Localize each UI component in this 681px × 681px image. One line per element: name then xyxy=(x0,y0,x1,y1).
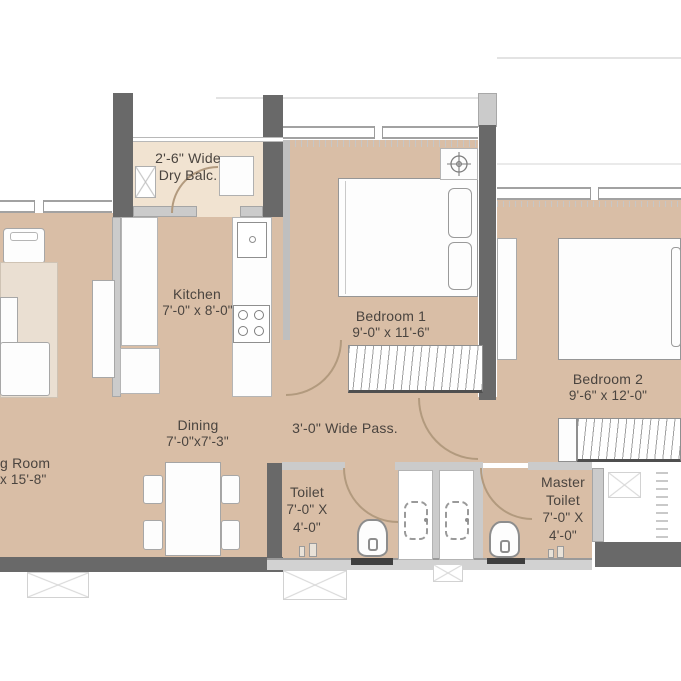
faucet-icon xyxy=(557,546,564,558)
master-wc-icon xyxy=(489,521,520,558)
dining-table xyxy=(165,462,221,556)
kitchen-dims: 7'-0" x 8'-0" xyxy=(140,303,255,318)
wardrobe2-end-cap xyxy=(558,418,577,462)
dining-label: Dining xyxy=(148,417,248,433)
bottom-wall xyxy=(0,557,283,572)
bedroom2-window xyxy=(497,187,681,200)
bedroom2-window-hatch xyxy=(497,201,681,207)
faucet-icon xyxy=(299,546,305,557)
armchair xyxy=(3,228,45,264)
bedroom2-dims: 9'-6" x 12'-0" xyxy=(543,388,673,403)
column-left xyxy=(113,93,133,217)
bedroom2-dresser xyxy=(497,238,517,360)
burner-icon xyxy=(238,326,248,336)
kitchen-label: Kitchen xyxy=(147,286,247,302)
wc-flush-icon xyxy=(368,538,378,551)
sink-drain-icon xyxy=(249,236,256,243)
kitchen-platform-left xyxy=(121,217,158,346)
duct-icon xyxy=(433,564,463,582)
dining-chair xyxy=(143,520,163,550)
column-mid xyxy=(263,95,283,217)
kitchen-sink xyxy=(237,222,267,258)
bedroom2-label: Bedroom 2 xyxy=(548,371,668,387)
bedroom2-window-mullion xyxy=(590,187,599,200)
duct-icon xyxy=(608,472,641,498)
sofa xyxy=(0,342,50,396)
exterior-ledge xyxy=(27,572,89,598)
shower-drain-icon xyxy=(424,518,428,522)
shower-drain-icon xyxy=(465,518,469,522)
armchair-cushion xyxy=(10,232,38,241)
bed1-fold-line xyxy=(345,181,346,294)
exterior-line-top xyxy=(216,97,478,99)
passage-label: 3'-0" Wide Pass. xyxy=(275,420,415,436)
wc1-base-ledge xyxy=(351,558,393,565)
kitchen-bedroom1-wall xyxy=(283,140,290,340)
faucet-icon xyxy=(309,543,317,557)
master-toilet-dims-line1: 7'-0" X xyxy=(523,510,603,525)
wc2-base-ledge xyxy=(487,558,525,564)
ceiling-fan-box xyxy=(440,148,478,180)
living-room-dims: x 15'-8" xyxy=(0,472,60,487)
toilet-dims-line1: 7'-0" X xyxy=(267,502,347,517)
master-toilet-top-wall xyxy=(528,462,592,470)
pillow xyxy=(448,188,472,238)
exterior-line-topright-2 xyxy=(497,163,681,165)
wc-flush-icon xyxy=(500,540,510,553)
exterior-ledge xyxy=(283,570,347,600)
living-room-label: g Room xyxy=(0,455,60,471)
toilet-label: Toilet xyxy=(267,484,347,500)
dining-chair xyxy=(221,520,240,550)
living-room-window-mullion xyxy=(34,200,44,213)
balcony-railing xyxy=(133,137,283,142)
faucet-icon xyxy=(548,549,554,558)
fridge xyxy=(120,348,160,394)
dining-chair xyxy=(143,475,163,504)
balcony-kitchen-wall-right xyxy=(240,206,263,217)
toilet-top-wall xyxy=(282,462,345,470)
dry-balcony-label-line2: Dry Balc. xyxy=(138,167,238,183)
floor-plan: 2'-6" Wide Dry Balc. Kitchen 7'-0" x 8'-… xyxy=(0,0,681,681)
dining-chair xyxy=(221,475,240,504)
master-toilet-label-line2: Toilet xyxy=(523,492,603,508)
living-room-window xyxy=(0,200,112,213)
dining-dims: 7'-0"x7'-3" xyxy=(140,434,255,449)
wardrobe2 xyxy=(577,418,681,462)
bedroom1-label: Bedroom 1 xyxy=(331,308,451,324)
ceiling-fan-icon xyxy=(441,149,477,179)
master-toilet-label-line1: Master xyxy=(523,474,603,490)
bottom-right-wall-block xyxy=(595,542,681,567)
tv-unit xyxy=(92,280,115,378)
burner-icon xyxy=(254,326,264,336)
dry-balcony-label-line1: 2'-6" Wide xyxy=(138,150,238,166)
pillow xyxy=(448,242,472,290)
shower-top-wall xyxy=(395,462,483,470)
burner-icon xyxy=(254,310,264,320)
pillow xyxy=(671,247,681,347)
bedroom1-dims: 9'-0" x 11'-6" xyxy=(326,325,456,340)
column-right-cap xyxy=(478,93,497,127)
exterior-line-topright-1 xyxy=(497,57,681,59)
duct-shaft-hatch xyxy=(656,472,668,540)
master-toilet-dims-line2: 4'-0" xyxy=(523,528,603,543)
bed2 xyxy=(558,238,681,360)
wardrobe1 xyxy=(348,345,483,393)
bedroom1-window-hatch xyxy=(283,140,478,147)
bedroom1-window-mullion xyxy=(374,126,383,139)
toilet-dims-line2: 4'-0" xyxy=(267,520,347,535)
toilet-wc-icon xyxy=(357,519,388,557)
